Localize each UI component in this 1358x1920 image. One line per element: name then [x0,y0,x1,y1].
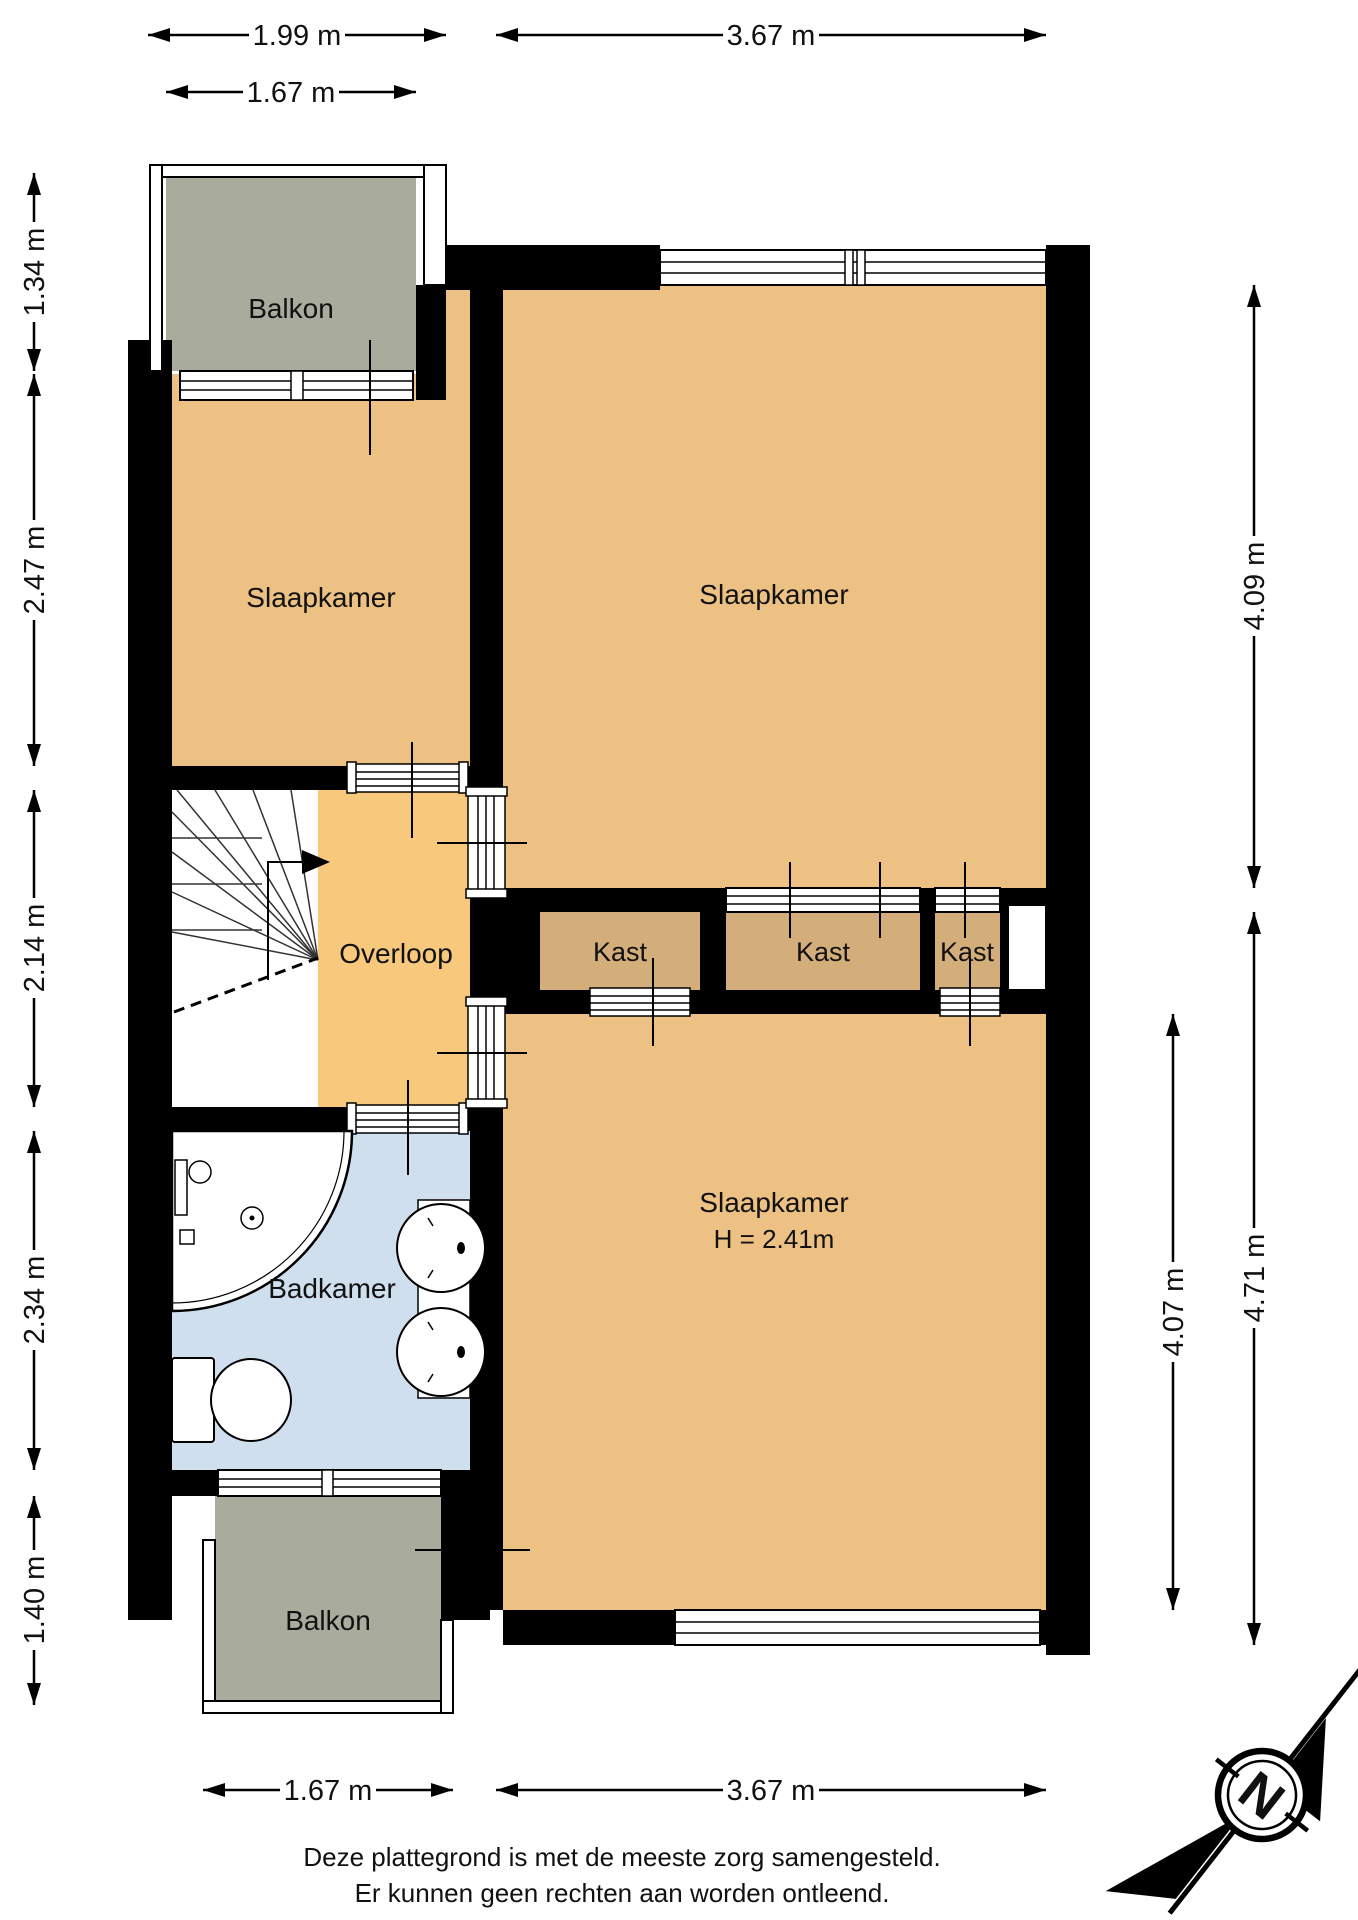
slaapkamer-left-label: Slaapkamer [246,582,395,613]
balkon-top-railing-top [150,165,446,177]
wall-niche [1008,905,1046,990]
dim-bottom-left: 1.67 m [203,1774,453,1807]
compass: N [1106,1626,1358,1920]
window-slaapkamer-bottom-south [675,1610,1040,1645]
window-kast2-top [726,888,920,912]
dim-right-top: 4.09 m [1238,285,1271,888]
slaapkamer-right-label: Slaapkamer [699,579,848,610]
window-kast3-top [935,888,1000,912]
slaapkamer-bottom-floor [503,1014,1046,1610]
dim-left-3: 2.14 m [18,790,51,1107]
balkon-top-label: Balkon [248,293,334,324]
dim-right-outer: 4.71 m [1238,912,1271,1645]
balkon-top-railing-right [424,165,446,285]
window-slaapkamer-right-north [660,250,1046,285]
dim-top-outer-left-label: 1.99 m [253,20,342,52]
balkon-top-floor [166,177,416,371]
badkamer-label: Badkamer [268,1273,396,1304]
window-badkamer-south [218,1470,441,1496]
dim-right-outer-label: 4.71 m [1239,1234,1271,1323]
door-kast1 [590,988,690,1016]
door-slaapkamer-left [347,762,468,793]
dim-right-top-label: 4.09 m [1239,542,1271,631]
balkon-bottom-label: Balkon [285,1605,371,1636]
kast3-label: Kast [940,937,995,967]
dim-bottom-left-label: 1.67 m [284,1775,373,1807]
footer-line2: Er kunnen geen rechten aan worden ontlee… [355,1878,890,1908]
dim-left-1: 1.34 m [18,173,51,371]
dim-left-4-label: 2.34 m [19,1256,51,1345]
dim-left-3-label: 2.14 m [19,904,51,993]
balkon-bottom-railing-right [441,1620,453,1713]
window-balkon-top [180,371,413,400]
balkon-bottom-railing-bottom [203,1701,453,1713]
balkon-top-railing-left [150,165,162,371]
dim-top-outer-left: 1.99 m [148,19,446,52]
slaapkamer-left-floor [172,374,470,766]
balkon-bottom-floor [215,1496,441,1701]
dim-right-inner-label: 4.07 m [1158,1268,1190,1357]
toilet [172,1358,291,1442]
floor-plan-svg: Balkon Slaapkamer Slaapkamer Overloop Ka… [0,0,1358,1920]
dim-left-1-label: 1.34 m [19,228,51,317]
dim-bottom-right-label: 3.67 m [727,1775,816,1807]
slaapkamer-left-floor-notch [446,290,470,380]
footer-line1: Deze plattegrond is met de meeste zorg s… [303,1842,940,1872]
slaapkamer-bottom-label: Slaapkamer [699,1187,848,1218]
dim-top-outer-right-label: 3.67 m [727,20,816,52]
dim-top-inner-left: 1.67 m [166,76,416,109]
dim-left-4: 2.34 m [18,1131,51,1470]
kast2-label: Kast [796,937,851,967]
dim-left-5: 1.40 m [18,1496,51,1705]
kast1-label: Kast [593,937,648,967]
floor-plan-page: Balkon Slaapkamer Slaapkamer Overloop Ka… [0,0,1358,1920]
dim-left-2-label: 2.47 m [19,526,51,615]
dim-bottom-right: 3.67 m [496,1774,1046,1807]
dim-right-inner: 4.07 m [1157,1014,1190,1610]
dim-left-5-label: 1.40 m [19,1556,51,1645]
balkon-bottom-railing-left [203,1540,215,1713]
dim-top-outer-right: 3.67 m [496,19,1046,52]
dim-top-inner-left-label: 1.67 m [247,77,336,109]
stairs [172,790,330,1012]
dim-left-2: 2.47 m [18,374,51,766]
overloop-label: Overloop [339,938,453,969]
slaapkamer-bottom-height: H = 2.41m [714,1224,835,1254]
footer: Deze plattegrond is met de meeste zorg s… [303,1842,940,1908]
